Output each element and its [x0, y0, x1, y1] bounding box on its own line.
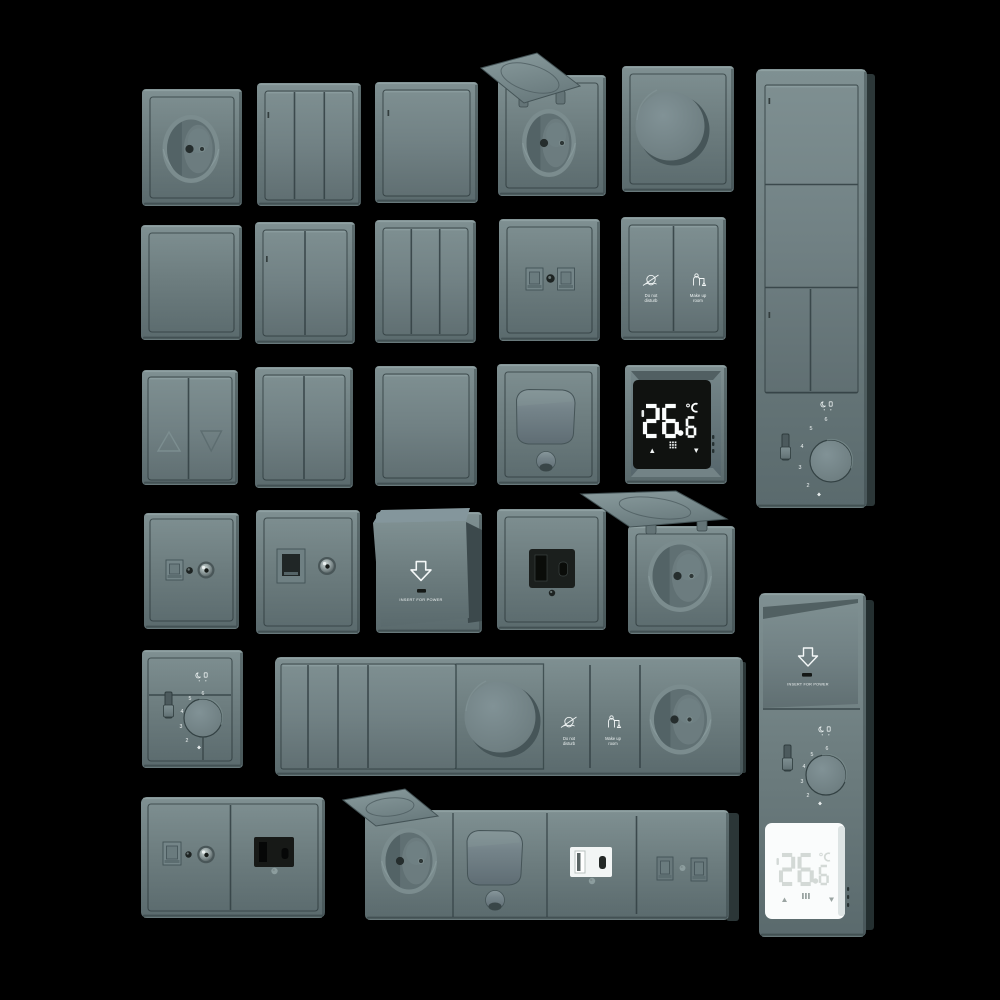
svg-text:2: 2: [807, 793, 810, 799]
svg-text:4: 4: [803, 764, 806, 770]
svg-text:2: 2: [186, 738, 189, 744]
svg-text:disturb: disturb: [645, 298, 659, 303]
svg-text:6: 6: [202, 691, 205, 697]
svg-text:4: 4: [181, 709, 184, 715]
svg-text:3: 3: [801, 779, 804, 785]
svg-text:2: 2: [807, 483, 810, 489]
svg-text:5: 5: [189, 696, 192, 702]
svg-text:5: 5: [810, 426, 813, 432]
svg-text:5: 5: [811, 752, 814, 758]
svg-text:6: 6: [826, 746, 829, 752]
svg-text:4: 4: [801, 444, 804, 450]
svg-text:INSERT FOR POWER: INSERT FOR POWER: [399, 597, 442, 602]
svg-text:room: room: [693, 298, 703, 303]
svg-text:3: 3: [180, 724, 183, 730]
svg-text:6: 6: [825, 417, 828, 423]
svg-text:3: 3: [799, 465, 802, 471]
svg-text:INSERT FOR POWER: INSERT FOR POWER: [787, 683, 829, 687]
svg-text:disturb: disturb: [563, 741, 576, 746]
svg-text:room: room: [608, 741, 618, 746]
